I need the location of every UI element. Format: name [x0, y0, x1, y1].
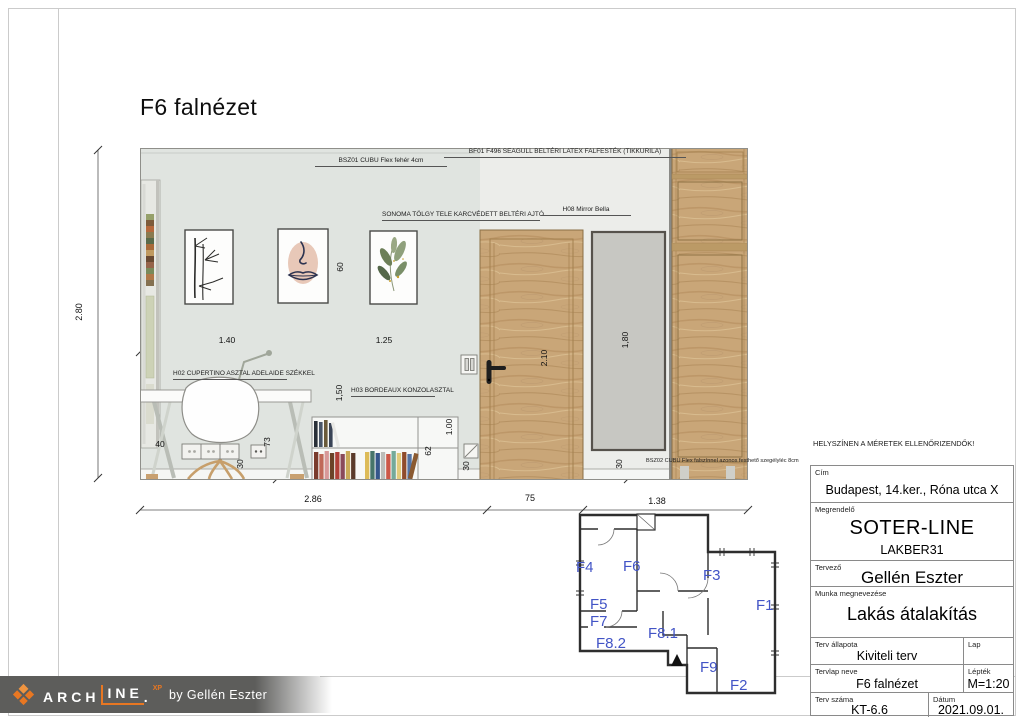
client-value: SOTER-LINE [811, 517, 1013, 540]
annotation-desk: H02 CUPERTINO ASZTAL ADELAIDE SZÉKKEL [173, 370, 287, 380]
room-label-f2: F2 [730, 677, 748, 694]
annotation-door: SONOMA TÖLGY TELE KARCVÉDETT BELTÉRI AJT… [382, 211, 540, 221]
annotation-ceiling-strip: BSZ01 CUBU Flex fehér 4cm [315, 157, 447, 167]
status-row: Terv állapota Kiviteli terv Lap [811, 638, 1013, 665]
address-row: Cím Budapest, 14.ker., Róna utca X [811, 466, 1013, 503]
archline-logo-bar: ARCHINE.XP by Gellén Eszter [0, 676, 332, 713]
room-label-f9: F9 [700, 659, 718, 676]
room-label-f6: F6 [623, 558, 641, 575]
dim-bottom-door: 75 [513, 493, 547, 505]
scale-cell: Lépték M=1:20 [964, 665, 1013, 692]
dim-mirror-height: 1,80 [620, 323, 632, 357]
plan-number-row: Terv száma KT-6.6 Dátum 2021.09.01. [811, 693, 1013, 717]
dim-console-span: 1,50 [334, 376, 346, 410]
annotation-mirror: H08 Mirror Bella [541, 206, 631, 216]
console-bookshelf [312, 417, 458, 480]
project-row: Munka megnevezése Lakás átalakítás [811, 587, 1013, 638]
designer-row: Tervező Gellén Eszter [811, 561, 1013, 587]
wardrobe [669, 148, 748, 480]
annotation-skirting: BSZ02 CUBU Flex falszínnel azonos festhe… [646, 458, 806, 465]
client-label: Megrendelő [815, 505, 855, 514]
picture-botanical [370, 231, 417, 304]
sheet-name-cell: Tervlap neve F6 falnézet [811, 665, 964, 692]
archline-wordmark: ARCHINE.XP [43, 685, 162, 705]
status-value: Kiviteli terv [811, 649, 963, 663]
brand-ine: INE [101, 685, 143, 705]
dim-right-span: 1.25 [364, 335, 404, 347]
title-block: HELYSZÍNEN A MÉRETEK ELLENŐRIZENDŐK! Cím… [810, 437, 1016, 716]
room-label-f1: F1 [756, 597, 774, 614]
scale-value: M=1:20 [964, 677, 1013, 691]
dim-desk-height: 73 [262, 425, 274, 459]
sheet-name-label: Tervlap neve [815, 667, 858, 676]
dim-console-floor: 30 [461, 449, 473, 483]
shelf-books [146, 214, 154, 286]
date-cell: Dátum 2021.09.01. [929, 693, 1013, 717]
sheet-number-cell: Lap [964, 638, 1013, 664]
client-value2: LAKBER31 [811, 543, 1013, 557]
dim-mirror-floor: 30 [614, 447, 626, 481]
scale-label: Lépték [968, 667, 991, 676]
sheet-name-row: Tervlap neve F6 falnézet Lépték M=1:20 [811, 665, 1013, 693]
archline-diamond-icon [13, 684, 34, 705]
room-label-f8-2: F8.2 [596, 635, 626, 652]
dim-console-right: 1.00 [444, 410, 456, 444]
brand-dot: . [144, 689, 152, 705]
project-label: Munka megnevezése [815, 589, 886, 598]
dim-socket-height: 30 [235, 447, 247, 481]
dim-bottom-left: 2.86 [293, 494, 333, 506]
dim-wall-height: 2.80 [74, 295, 86, 329]
logo-byline: by Gellén Eszter [169, 688, 267, 702]
address-value: Budapest, 14.ker., Róna utca X [811, 483, 1013, 497]
power-sockets [182, 444, 266, 459]
client-row: Megrendelő SOTER-LINE LAKBER31 [811, 503, 1013, 561]
title-block-table: Cím Budapest, 14.ker., Róna utca X Megre… [810, 465, 1014, 716]
status-cell: Terv állapota Kiviteli terv [811, 638, 964, 664]
plan-number-cell: Terv száma KT-6.6 [811, 693, 929, 717]
dim-left-span: 1.40 [207, 335, 247, 347]
sheet-number-label: Lap [968, 640, 981, 649]
dim-console-height: 62 [423, 434, 435, 468]
room-label-f3: F3 [703, 567, 721, 584]
drawing-sheet: F6 falnézet [0, 0, 1024, 724]
sheet-name-value: F6 falnézet [811, 677, 963, 691]
room-label-f7: F7 [590, 613, 608, 630]
dim-desk-depth: 40 [146, 439, 174, 451]
picture-face-lineart [278, 229, 328, 303]
project-value: Lakás átalakítás [811, 604, 1013, 625]
page-title: F6 falnézet [140, 94, 257, 121]
measurements-warning: HELYSZÍNEN A MÉRETEK ELLENŐRIZENDŐK! [813, 439, 974, 448]
dim-picture-gap: 60 [335, 250, 347, 284]
room-label-f4: F4 [576, 559, 594, 576]
brand-xp: XP [153, 685, 162, 692]
address-label: Cím [815, 468, 829, 477]
picture-bamboo [185, 230, 233, 304]
annotation-console: H03 BORDEAUX KONZOLASZTAL [351, 387, 435, 397]
status-label: Terv állapota [815, 640, 858, 649]
room-label-f5: F5 [590, 596, 608, 613]
floorplan-labels: F4 F6 F3 F5 F7 F8.2 F8.1 F1 F9 F2 [568, 503, 795, 702]
dim-door-height: 2.10 [539, 341, 551, 375]
plan-number-value: KT-6.6 [811, 703, 928, 717]
door [480, 230, 583, 480]
room-label-f8-1: F8.1 [648, 625, 678, 642]
annotation-wall-paint: BF01 F496 SEAGULL BELTÉRI LATEX FALFESTÉ… [444, 148, 686, 158]
date-value: 2021.09.01. [929, 703, 1013, 717]
designer-value: Gellén Eszter [811, 568, 1013, 588]
brand-arch: ARCH [43, 689, 99, 705]
